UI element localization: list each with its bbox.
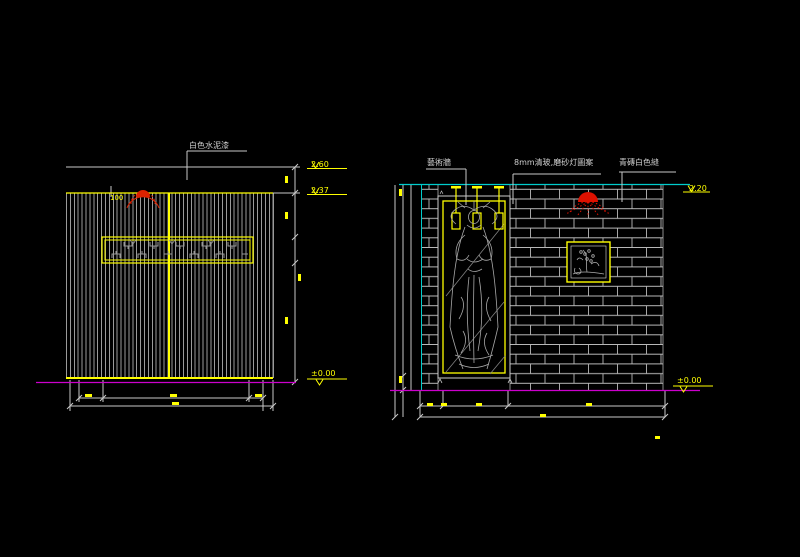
left-elevation-linework [30, 130, 350, 430]
figure-artwork [450, 201, 498, 369]
left-dimension-lines [66, 151, 300, 411]
brick-wall [510, 185, 663, 390]
brick-pilaster [421, 185, 438, 390]
level-marker-2-60: 2.60 [304, 161, 329, 169]
right-elevation-linework [385, 150, 715, 450]
lattice-band [102, 237, 253, 263]
cad-drawing-canvas: 白色水泥漆 100 2.60 2.37 ±0.00 [0, 0, 800, 557]
level-marker-zero-right: ±0.00 [670, 377, 702, 385]
level-marker-2-20: 2.20 [682, 185, 707, 193]
dimension-text-marks [85, 176, 301, 405]
level-value: ±0.00 [670, 377, 702, 385]
art-wall-label: 藝術牆 [427, 158, 451, 167]
level-marker-zero-left: ±0.00 [304, 370, 336, 378]
wall-emblem [567, 242, 610, 282]
level-value: ±0.00 [304, 370, 336, 378]
radius-dimension-label: 100 [110, 194, 123, 202]
glass-spec-label: 8mm清玻,磨砂灯圖案 [514, 158, 593, 167]
paint-finish-label: 白色水泥漆 [189, 141, 229, 150]
glass-art-panel [438, 191, 512, 383]
level-marker-2-37: 2.37 [304, 187, 329, 195]
brick-finish-label: 青磚白色縫 [619, 158, 659, 167]
